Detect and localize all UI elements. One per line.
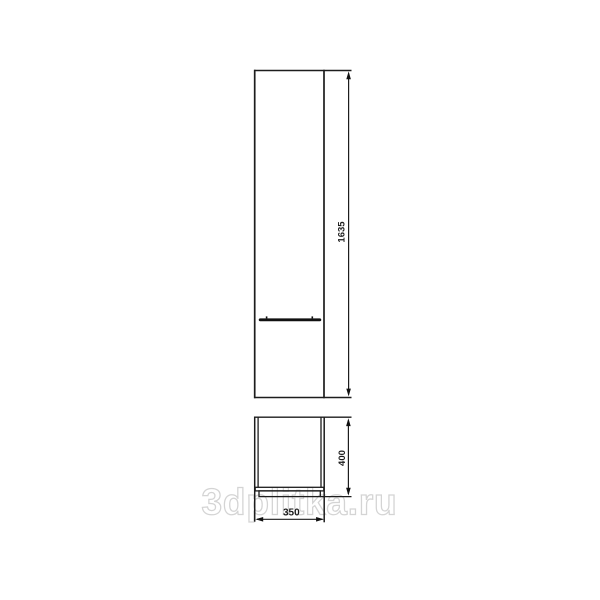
svg-text:1635: 1635 (337, 221, 348, 243)
svg-text:350: 350 (283, 508, 300, 519)
svg-text:400: 400 (337, 450, 348, 466)
